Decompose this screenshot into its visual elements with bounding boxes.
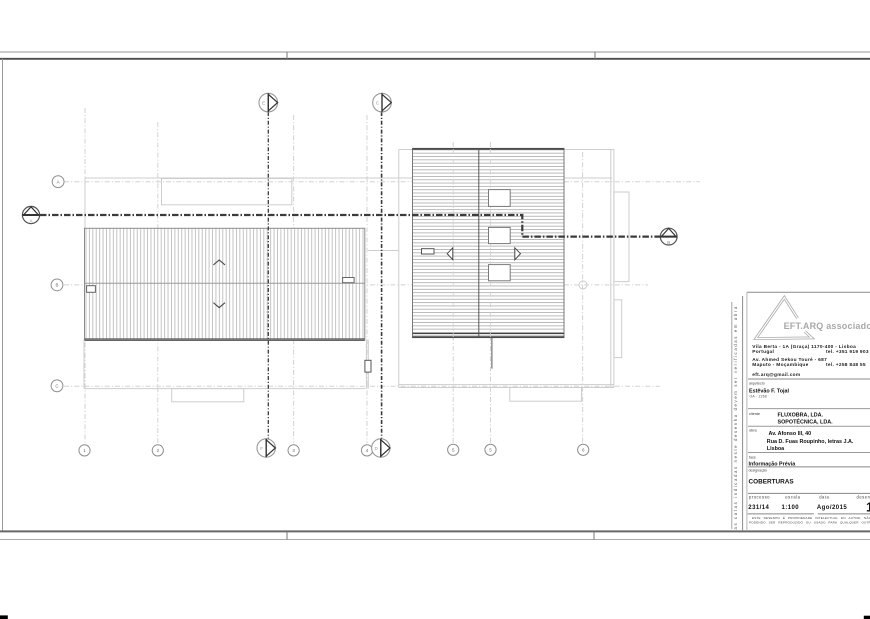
svg-text:Lisboa: Lisboa: [767, 446, 785, 452]
svg-text:1: 1: [866, 499, 870, 514]
svg-text:EFT.ARQ associado: EFT.ARQ associado: [784, 321, 870, 331]
svg-text:processo: processo: [749, 495, 770, 500]
svg-text:escala: escala: [785, 495, 800, 500]
svg-text:ESTE DESENHO É PROPRIEDADE INT: ESTE DESENHO É PROPRIEDADE INTELECTUAL D…: [752, 515, 870, 520]
svg-text:OA - 2268: OA - 2268: [750, 394, 768, 398]
svg-text:A: A: [57, 179, 60, 184]
svg-text:B: B: [667, 240, 670, 245]
svg-text:arquitecto: arquitecto: [749, 382, 765, 386]
svg-text:SOPOTÉCNICA, LDA.: SOPOTÉCNICA, LDA.: [778, 417, 834, 425]
svg-text:tel. +258 848 55: tel. +258 848 55: [826, 362, 866, 368]
svg-text:E: E: [262, 101, 265, 106]
svg-text:eft.arq@gmail.com: eft.arq@gmail.com: [752, 372, 800, 378]
svg-text:FLUXOBRA, LDA.: FLUXOBRA, LDA.: [778, 412, 824, 418]
svg-text:PODENDO SER REPRODUZIDO OU USA: PODENDO SER REPRODUZIDO OU USADO PARA QU…: [749, 521, 870, 525]
svg-text:designação: designação: [749, 468, 767, 472]
svg-text:fase: fase: [749, 455, 756, 459]
svg-text:data: data: [819, 495, 829, 500]
svg-text:as cotas indicadas neste desen: as cotas indicadas neste desenho devem s…: [733, 306, 738, 530]
svg-text:Ago/2015: Ago/2015: [817, 505, 847, 511]
svg-text:tel. +351 919 903: tel. +351 919 903: [826, 349, 869, 355]
svg-text:1:100: 1:100: [782, 505, 800, 511]
svg-text:cliente: cliente: [749, 412, 760, 416]
svg-text:COBERTURAS: COBERTURAS: [749, 478, 795, 485]
svg-text:Maputo - Moçambique: Maputo - Moçambique: [752, 362, 808, 368]
svg-text:231/14: 231/14: [748, 505, 769, 511]
svg-text:B: B: [56, 283, 59, 288]
svg-text:Portugal: Portugal: [752, 349, 774, 355]
svg-text:Rua D. Fuas Roupinho, letras J: Rua D. Fuas Roupinho, letras J.A.: [767, 439, 854, 445]
svg-text:F: F: [260, 446, 263, 451]
svg-text:Av. Afonso III, 40: Av. Afonso III, 40: [769, 431, 812, 437]
svg-text:C: C: [55, 384, 58, 389]
svg-text:obra: obra: [749, 429, 757, 433]
